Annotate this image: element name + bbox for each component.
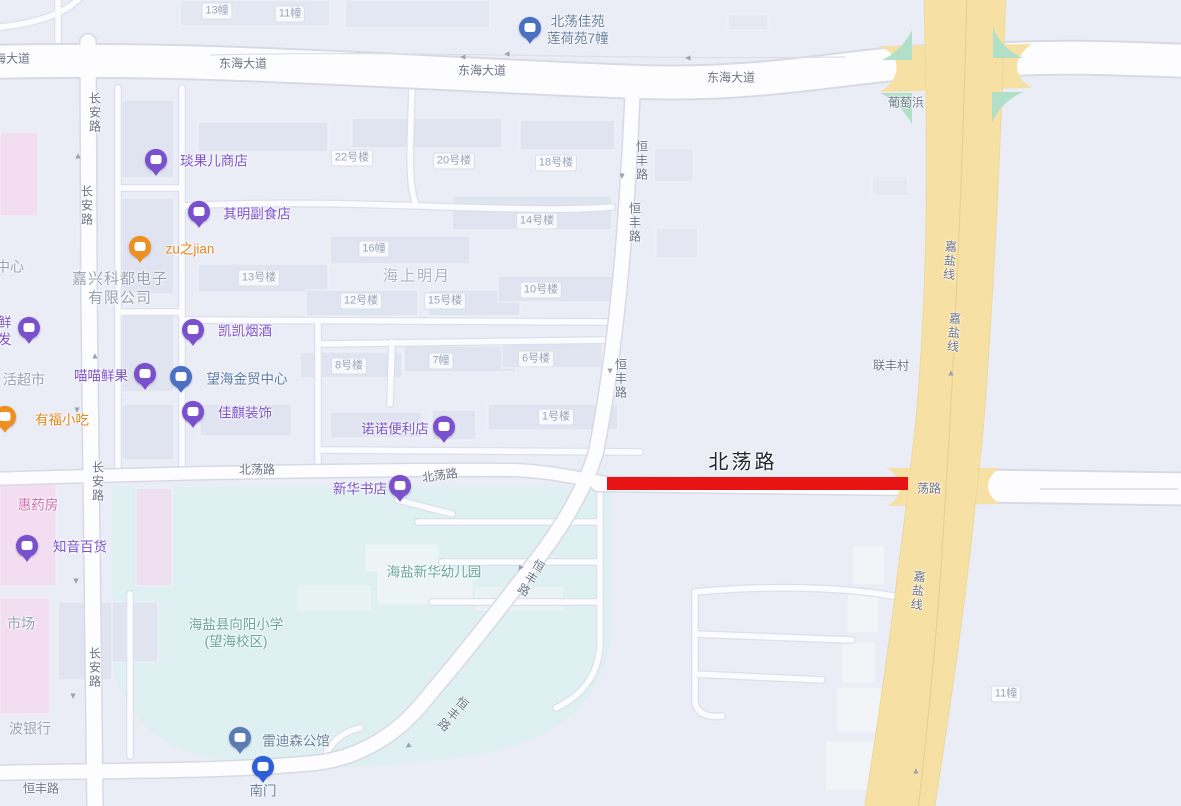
poi-miaomiao-pin[interactable] [134,363,156,385]
road-label-hengfeng-1: 恒丰路 [634,140,649,182]
road-label-beidang-big: 北荡路 [709,451,778,476]
road-label-changan-2: 长安路 [79,185,94,227]
poi-nuonuo-label[interactable]: 诺诺便利店 [361,422,429,439]
label-youeryuan: 海盐新华幼儿园 [387,565,482,582]
bld-8haolou: 8号楼 [331,358,367,375]
road-label-hengfeng-2: 恒丰路 [627,202,642,244]
poi-zujian-pin[interactable] [129,236,151,258]
label-company: 嘉兴科都电子 有限公司 [72,270,168,308]
poi-xinhua-label[interactable]: 新华书店 [333,482,387,499]
poi-qiming-label[interactable]: 其明副食店 [223,207,291,224]
bld-14haolou: 14号楼 [516,213,558,230]
poi-beidangjiayuan-pin[interactable] [519,17,541,39]
bld-10haolou: 10号楼 [520,282,562,299]
oneway-arrow-icon: ▲ [74,152,83,161]
bld-11zhuang-top: 11幢 [275,6,305,23]
poi-nuonuo-pin[interactable] [433,416,455,438]
poi-miaomiao-label[interactable]: 喵喵鲜果 [74,369,128,386]
road-label-changan-4: 长安路 [87,647,102,689]
road-label-beidang-2: 北荡路 [421,466,459,486]
poi-kaikai-label[interactable]: 凯凯烟酒 [218,324,272,341]
label-lianfengcun: 联丰村 [873,359,909,374]
bld-13zhuang: 13幢 [201,3,232,20]
label-haishangmingyue: 海上明月 [383,268,451,287]
poi-jiaqi-label[interactable]: 佳麒装饰 [218,406,272,423]
poi-nanmen-pin[interactable] [252,756,274,778]
poi-nanmen-icon [258,762,269,771]
poi-leidisen-pin[interactable] [229,727,251,749]
road-label-donghai-c2: 东海大道 [458,64,506,79]
road-label-changan-3: 长安路 [90,461,105,503]
poi-qiming-pin[interactable] [188,201,210,223]
bld-7zhuang: 7幢 [428,353,453,370]
label-huochaoshi: 活超市 [3,371,45,389]
poi-shengxian-icon [24,323,35,332]
poi-wanghai-icon [176,372,187,381]
poi-shengxian-label[interactable]: 生鲜 批发 [0,315,12,349]
oneway-arrow-icon: ▲ [912,767,921,776]
bld-12haolou: 12号楼 [340,293,382,310]
map-viewport[interactable]: 东海大道东海大道东海大道东海大道葡萄浜长安路长安路长安路长安路恒丰路恒丰路恒丰路… [0,0,1181,806]
poi-zhiyin-icon [22,541,33,550]
oneway-arrow-icon: ▲ [72,577,81,586]
poi-qiming-icon [194,207,205,216]
poi-zhiyin-pin[interactable] [16,535,38,557]
oneway-arrow-icon: ▲ [947,369,956,378]
bld-16zhuang: 16幢 [358,241,389,258]
poi-zujian-label[interactable]: zu之jian [166,242,215,259]
bld-1haolou: 1号楼 [538,409,574,426]
poi-zhiyin-label[interactable]: 知音百货 [53,540,107,557]
bld-18haolou: 18号楼 [535,155,577,172]
poi-wanghai-pin[interactable] [170,366,192,388]
bld-15haolou: 15号楼 [424,293,466,310]
bld-11zhuang-br: 11幢 [991,686,1021,703]
poi-beidangjiayuan-icon [525,23,536,32]
label-zhongxin: 中心 [0,258,24,276]
road-label-hengfeng-5: 恒丰路 [433,693,471,735]
road-label-jiayan-1: 嘉盐线 [940,240,958,283]
label-xiaoxue: 海盐县向阳小学 (望海校区) [189,617,284,651]
poi-shengxian-pin[interactable] [18,317,40,339]
road-label-donghai-e: 东海大道 [707,71,755,86]
road-label-donghai-w: 东海大道 [0,52,30,67]
road-label-donghai-c1: 东海大道 [219,57,267,72]
road-label-beidang-1: 北荡路 [239,463,275,478]
poi-zujian-icon [135,242,146,251]
poi-beidangjiayuan-label[interactable]: 北荡佳苑 莲荷苑7幢 [547,14,609,48]
bld-13haolou: 13号楼 [238,270,280,287]
poi-youfu-icon [0,412,11,421]
road-label-hengfeng-3: 恒丰路 [613,358,628,400]
road-label-hengfeng-6: 恒丰路 [23,782,59,797]
oneway-arrow-icon: ▲ [69,692,78,701]
poi-yanguoer-label[interactable]: 琰果儿商店 [180,154,248,171]
label-putaobang: 葡萄浜 [888,96,924,111]
map-label-layer: 东海大道东海大道东海大道东海大道葡萄浜长安路长安路长安路长安路恒丰路恒丰路恒丰路… [0,0,1181,806]
poi-leidisen-icon [235,733,246,742]
poi-yanguoer-pin[interactable] [145,149,167,171]
poi-leidisen-label[interactable]: 雷迪森公馆 [262,734,330,751]
poi-yanguoer-icon [151,155,162,164]
oneway-arrow-icon: ▲ [606,367,615,376]
oneway-arrow-icon: ▲ [91,352,100,361]
poi-huiyaofang-label[interactable]: 惠药房 [18,498,59,515]
road-label-changan-1: 长安路 [87,92,102,134]
poi-miaomiao-icon [140,369,151,378]
oneway-arrow-icon: ▲ [618,172,627,181]
poi-jiaqi-pin[interactable] [182,401,204,423]
poi-nuonuo-icon [439,422,450,431]
oneway-arrow-icon: ▲ [402,740,414,752]
road-label-jiayan-3: 嘉盐线 [907,569,926,612]
bld-6haolou: 6号楼 [518,351,554,368]
road-label-jiayan-2: 嘉盐线 [944,312,962,355]
poi-xinhua-icon [395,481,406,490]
label-boyinhang: 波银行 [9,720,51,738]
bld-20haolou: 20号楼 [433,153,475,170]
oneway-arrow-icon: ▲ [459,53,468,62]
oneway-arrow-icon: ▲ [503,50,512,59]
poi-kaikai-icon [188,325,199,334]
poi-kaikai-pin[interactable] [182,319,204,341]
bld-22haolou: 22号楼 [331,150,373,167]
road-label-beidang-3: 荡路 [917,482,941,497]
poi-youfu-pin[interactable] [0,406,16,428]
label-shichang: 市场 [7,615,35,633]
poi-xinhua-pin[interactable] [389,475,411,497]
poi-jiaqi-icon [188,407,199,416]
poi-wanghai-label[interactable]: 望海金贸中心 [207,372,288,389]
oneway-arrow-icon: ▲ [73,406,82,415]
oneway-arrow-icon: ▲ [684,54,693,63]
